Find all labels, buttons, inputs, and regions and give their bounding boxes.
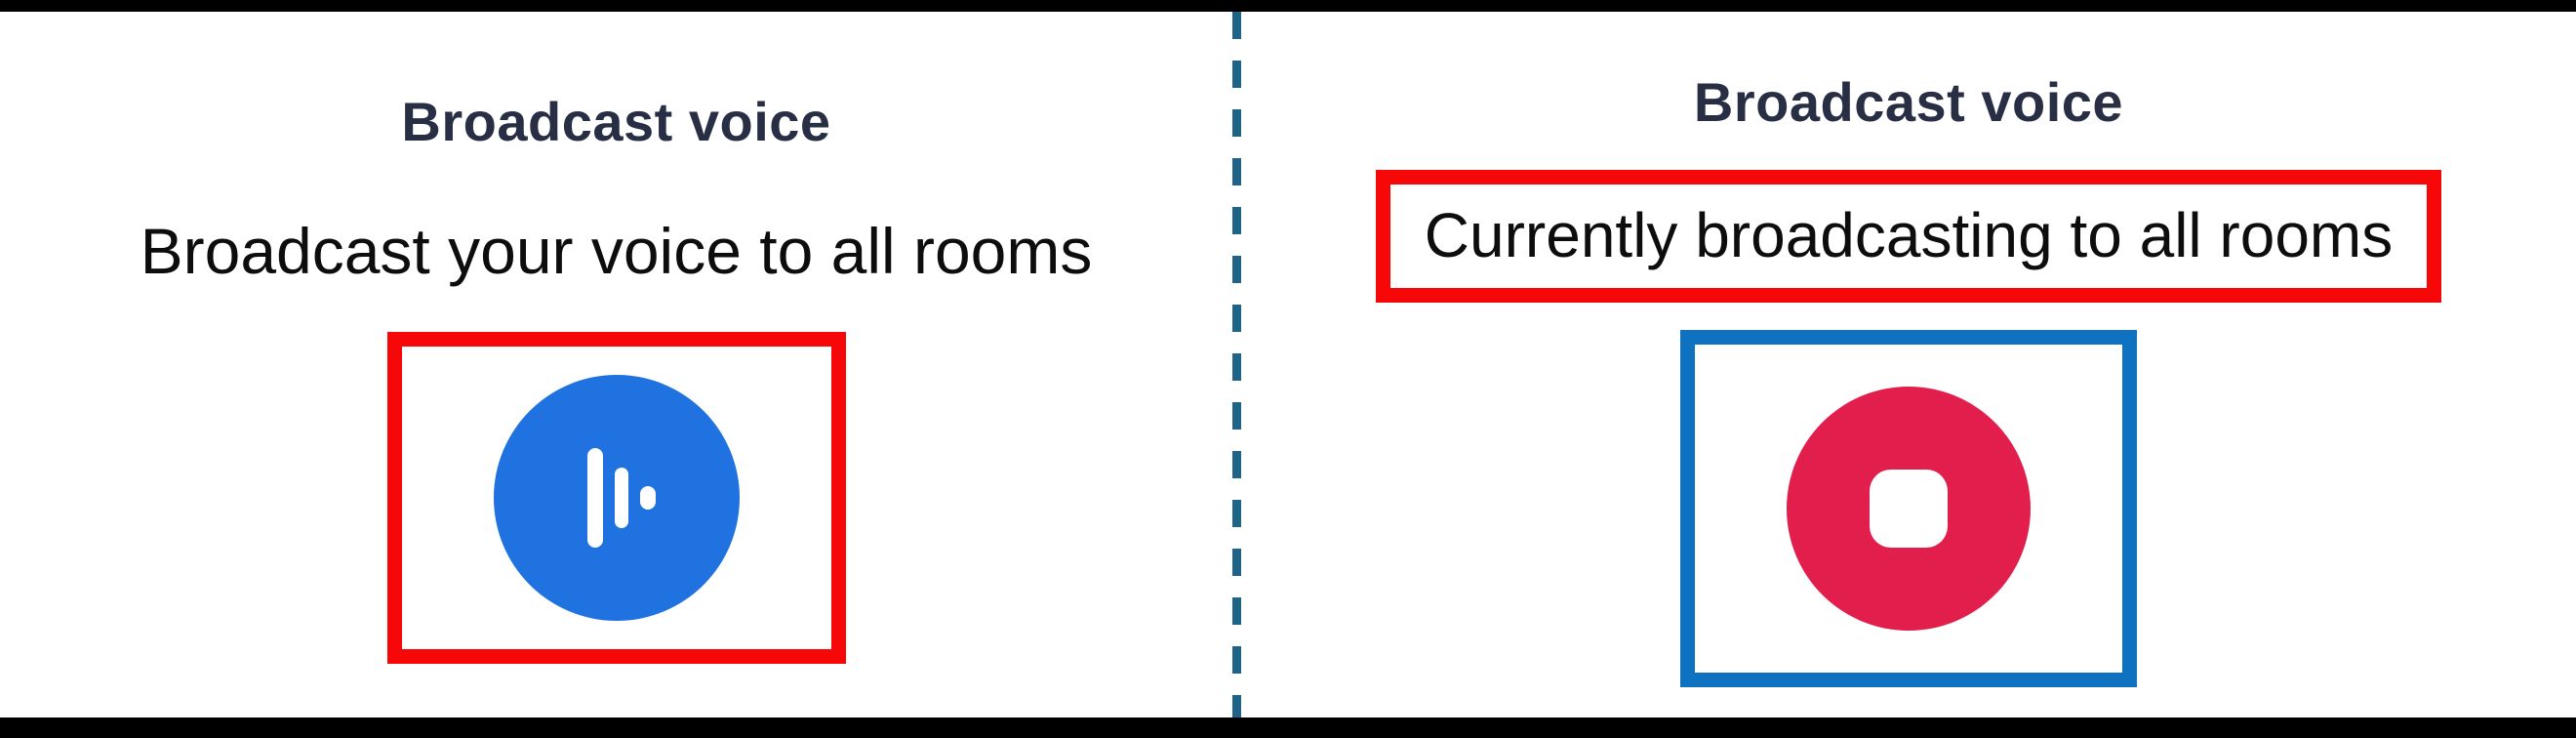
stop-icon (1870, 470, 1948, 548)
panel-broadcast-idle: Broadcast voice Broadcast your voice to … (0, 12, 1232, 717)
stop-broadcast-button[interactable] (1787, 387, 2031, 631)
annotation-red-box-status: Currently broadcasting to all rooms (1376, 170, 2441, 303)
page-title: Broadcast voice (0, 92, 1232, 152)
broadcast-voice-button[interactable] (494, 375, 740, 621)
voice-wave-icon (587, 448, 656, 548)
top-border (0, 0, 2576, 12)
panel-divider-dashed (1232, 12, 1241, 717)
annotation-blue-box-button (1680, 330, 2137, 687)
page-title: Broadcast voice (1241, 72, 2576, 133)
bottom-border (0, 717, 2576, 738)
annotation-red-box-button (387, 332, 846, 664)
broadcast-status-text: Currently broadcasting to all rooms (1425, 200, 2393, 272)
broadcast-description: Broadcast your voice to all rooms (0, 215, 1232, 289)
panel-broadcast-active: Broadcast voice Currently broadcasting t… (1241, 12, 2576, 717)
annotated-screenshot: Broadcast voice Broadcast your voice to … (0, 0, 2576, 738)
